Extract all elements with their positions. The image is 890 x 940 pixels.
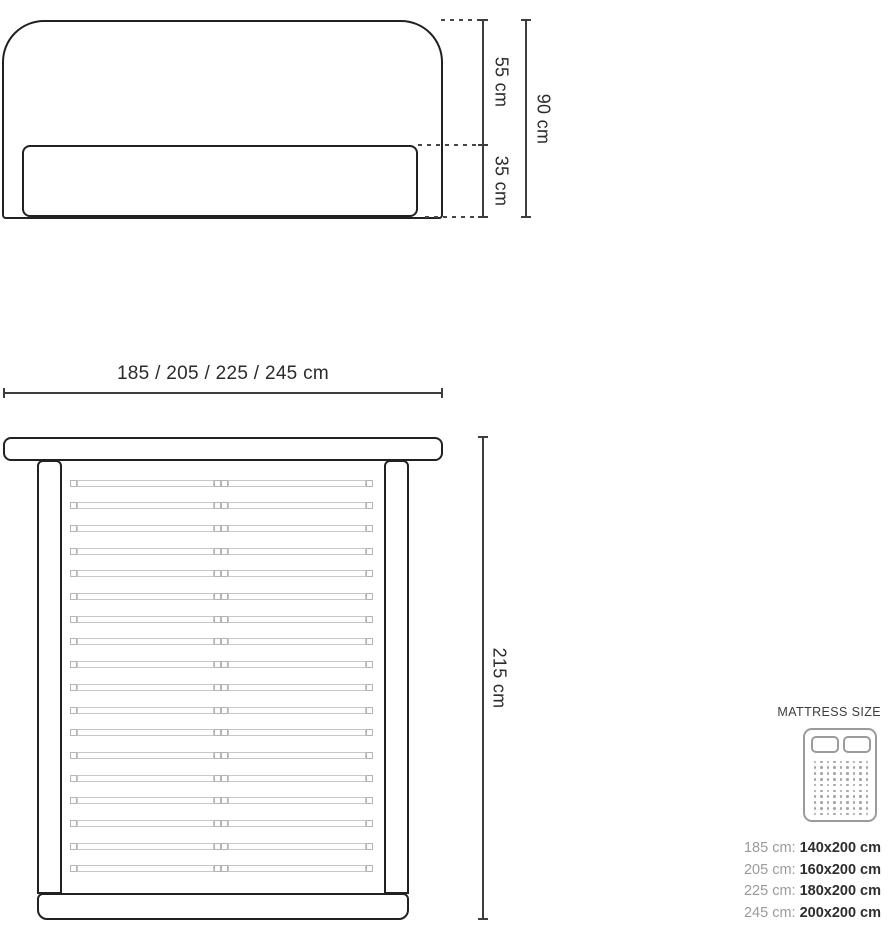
bed-dimensions-diagram: 55 cm 35 cm 90 cm 185 / 205 / 225 / 245 … bbox=[0, 0, 890, 940]
dimension-line-215 bbox=[482, 437, 484, 920]
slat-row bbox=[70, 775, 374, 782]
slat-row bbox=[70, 638, 374, 645]
slat-bar bbox=[228, 593, 366, 600]
slat-bar bbox=[228, 661, 366, 668]
slat-bar bbox=[77, 570, 214, 577]
mattress-icon bbox=[803, 728, 877, 822]
slat-row bbox=[70, 548, 374, 555]
left-rail-outline bbox=[37, 460, 62, 894]
tick bbox=[478, 19, 488, 21]
slat-bar bbox=[77, 548, 214, 555]
slat-bar bbox=[228, 570, 366, 577]
slat-end-cap bbox=[214, 707, 221, 714]
pillow-icon bbox=[843, 736, 871, 753]
slat-bar bbox=[77, 593, 214, 600]
slat-end-cap bbox=[366, 480, 373, 487]
slat-end-cap bbox=[214, 684, 221, 691]
pillow-icon bbox=[811, 736, 839, 753]
slat-bar bbox=[77, 684, 214, 691]
frame-size-label: 245 cm: bbox=[744, 905, 796, 921]
slat-end-cap bbox=[214, 661, 221, 668]
footboard-outline bbox=[37, 893, 409, 920]
slat-row bbox=[70, 729, 374, 736]
slat-row bbox=[70, 707, 374, 714]
slat-bar bbox=[228, 502, 366, 509]
slat-end-cap bbox=[214, 843, 221, 850]
width-label: 185 / 205 / 225 / 245 cm bbox=[3, 363, 443, 385]
slat-end-cap bbox=[70, 616, 77, 623]
slat-row bbox=[70, 593, 374, 600]
frame-size-label: 225 cm: bbox=[744, 883, 796, 899]
slat-end-cap bbox=[366, 661, 373, 668]
tick bbox=[441, 388, 443, 398]
slat-row bbox=[70, 661, 374, 668]
slat-end-cap bbox=[70, 638, 77, 645]
frame-size-label: 185 cm: bbox=[744, 840, 796, 856]
slat-row bbox=[70, 480, 374, 487]
slat-bar bbox=[228, 775, 366, 782]
slat-end-cap bbox=[366, 707, 373, 714]
slat-bar bbox=[77, 480, 214, 487]
tick bbox=[478, 216, 488, 218]
slat-bar bbox=[77, 729, 214, 736]
extension-line-bottom bbox=[425, 216, 485, 218]
slat-row bbox=[70, 797, 374, 804]
slat-row bbox=[70, 684, 374, 691]
slat-end-cap bbox=[221, 638, 228, 645]
slat-bar bbox=[77, 797, 214, 804]
slat-row bbox=[70, 616, 374, 623]
tick bbox=[478, 918, 488, 920]
slat-bar bbox=[228, 865, 366, 872]
slat-end-cap bbox=[70, 865, 77, 872]
slat-end-cap bbox=[214, 480, 221, 487]
slat-end-cap bbox=[221, 729, 228, 736]
legend-title: MATTRESS SIZE bbox=[740, 705, 881, 719]
size-list-item: 205 cm:160x200 cm bbox=[690, 860, 881, 882]
slat-end-cap bbox=[70, 729, 77, 736]
tufting-dot bbox=[864, 811, 870, 817]
size-list-item: 225 cm:180x200 cm bbox=[690, 881, 881, 903]
slat-end-cap bbox=[221, 820, 228, 827]
size-list-item: 185 cm:140x200 cm bbox=[690, 838, 881, 860]
slat-bar bbox=[228, 843, 366, 850]
mattress-size-value: 200x200 cm bbox=[800, 905, 881, 921]
slat-end-cap bbox=[366, 684, 373, 691]
slat-end-cap bbox=[366, 865, 373, 872]
slat-end-cap bbox=[214, 616, 221, 623]
lower-height-label: 35 cm bbox=[491, 156, 512, 207]
mattress-size-value: 180x200 cm bbox=[800, 883, 881, 899]
slat-end-cap bbox=[221, 502, 228, 509]
dimension-line-55-35 bbox=[482, 19, 484, 218]
slat-end-cap bbox=[221, 707, 228, 714]
slat-bar bbox=[228, 684, 366, 691]
slat-row bbox=[70, 843, 374, 850]
slat-bar bbox=[228, 797, 366, 804]
length-label: 215 cm bbox=[489, 648, 510, 709]
slat-row bbox=[70, 752, 374, 759]
extension-line-mid bbox=[418, 144, 485, 146]
slat-row bbox=[70, 525, 374, 532]
total-height-label: 90 cm bbox=[533, 94, 554, 145]
slat-end-cap bbox=[214, 525, 221, 532]
slat-end-cap bbox=[221, 752, 228, 759]
slat-end-cap bbox=[70, 593, 77, 600]
slat-bar bbox=[77, 865, 214, 872]
slat-end-cap bbox=[214, 502, 221, 509]
frame-size-label: 205 cm: bbox=[744, 862, 796, 878]
slat-bar bbox=[77, 752, 214, 759]
slat-end-cap bbox=[366, 752, 373, 759]
dimension-line-90 bbox=[525, 19, 527, 218]
slat-end-cap bbox=[70, 661, 77, 668]
slat-bar bbox=[228, 820, 366, 827]
slat-bar bbox=[77, 638, 214, 645]
slat-end-cap bbox=[366, 502, 373, 509]
slat-end-cap bbox=[70, 570, 77, 577]
tick bbox=[478, 144, 488, 146]
slat-bar bbox=[228, 752, 366, 759]
slat-end-cap bbox=[214, 820, 221, 827]
slat-end-cap bbox=[70, 797, 77, 804]
slat-end-cap bbox=[221, 775, 228, 782]
slat-end-cap bbox=[70, 480, 77, 487]
tick bbox=[521, 19, 531, 21]
slat-bar bbox=[77, 661, 214, 668]
slat-bar bbox=[77, 616, 214, 623]
slat-end-cap bbox=[366, 797, 373, 804]
slat-end-cap bbox=[70, 820, 77, 827]
tick bbox=[478, 436, 488, 438]
slat-row bbox=[70, 865, 374, 872]
slat-bar bbox=[228, 638, 366, 645]
slat-bar bbox=[77, 502, 214, 509]
slat-bar bbox=[228, 729, 366, 736]
slat-bar bbox=[77, 707, 214, 714]
slat-row bbox=[70, 502, 374, 509]
slat-end-cap bbox=[70, 684, 77, 691]
slat-bar bbox=[228, 480, 366, 487]
slat-end-cap bbox=[221, 865, 228, 872]
slat-end-cap bbox=[366, 775, 373, 782]
slat-end-cap bbox=[221, 593, 228, 600]
slat-row bbox=[70, 820, 374, 827]
slat-end-cap bbox=[366, 729, 373, 736]
tick bbox=[521, 216, 531, 218]
slat-end-cap bbox=[221, 797, 228, 804]
right-rail-outline bbox=[384, 460, 409, 894]
slat-area bbox=[70, 476, 374, 876]
slat-end-cap bbox=[221, 570, 228, 577]
upper-height-label: 55 cm bbox=[491, 57, 512, 108]
slat-bar bbox=[228, 707, 366, 714]
slat-row bbox=[70, 570, 374, 577]
slat-end-cap bbox=[366, 616, 373, 623]
slat-bar bbox=[77, 843, 214, 850]
slat-end-cap bbox=[70, 707, 77, 714]
slat-end-cap bbox=[214, 752, 221, 759]
size-list-item: 245 cm:200x200 cm bbox=[690, 903, 881, 925]
slat-end-cap bbox=[214, 593, 221, 600]
slat-end-cap bbox=[366, 525, 373, 532]
slat-end-cap bbox=[221, 548, 228, 555]
dimension-line-width bbox=[3, 392, 443, 394]
slat-end-cap bbox=[70, 525, 77, 532]
slat-end-cap bbox=[221, 684, 228, 691]
slat-end-cap bbox=[70, 548, 77, 555]
slat-end-cap bbox=[366, 843, 373, 850]
slat-end-cap bbox=[221, 525, 228, 532]
slat-end-cap bbox=[214, 570, 221, 577]
slat-end-cap bbox=[221, 843, 228, 850]
slat-end-cap bbox=[366, 820, 373, 827]
slat-end-cap bbox=[221, 616, 228, 623]
slat-end-cap bbox=[70, 502, 77, 509]
slat-end-cap bbox=[70, 843, 77, 850]
slat-end-cap bbox=[214, 548, 221, 555]
slat-end-cap bbox=[366, 638, 373, 645]
slat-end-cap bbox=[214, 638, 221, 645]
slat-end-cap bbox=[366, 593, 373, 600]
slat-end-cap bbox=[214, 865, 221, 872]
slat-end-cap bbox=[221, 480, 228, 487]
slat-end-cap bbox=[214, 797, 221, 804]
size-list: 185 cm:140x200 cm 205 cm:160x200 cm 225 … bbox=[690, 838, 881, 924]
slat-end-cap bbox=[70, 752, 77, 759]
slat-end-cap bbox=[366, 570, 373, 577]
slat-bar bbox=[77, 820, 214, 827]
mattress-tufting-dots bbox=[812, 759, 870, 817]
tick bbox=[3, 388, 5, 398]
slat-bar bbox=[228, 525, 366, 532]
slat-bar bbox=[228, 548, 366, 555]
mattress-size-value: 160x200 cm bbox=[800, 862, 881, 878]
slat-end-cap bbox=[221, 661, 228, 668]
slat-end-cap bbox=[70, 775, 77, 782]
slat-bar bbox=[228, 616, 366, 623]
slat-end-cap bbox=[366, 548, 373, 555]
mattress-size-value: 140x200 cm bbox=[800, 840, 881, 856]
slat-bar bbox=[77, 525, 214, 532]
slat-end-cap bbox=[214, 775, 221, 782]
slat-bar bbox=[77, 775, 214, 782]
headboard-top-outline bbox=[3, 437, 443, 461]
bed-base-front-outline bbox=[22, 145, 418, 217]
slat-end-cap bbox=[214, 729, 221, 736]
